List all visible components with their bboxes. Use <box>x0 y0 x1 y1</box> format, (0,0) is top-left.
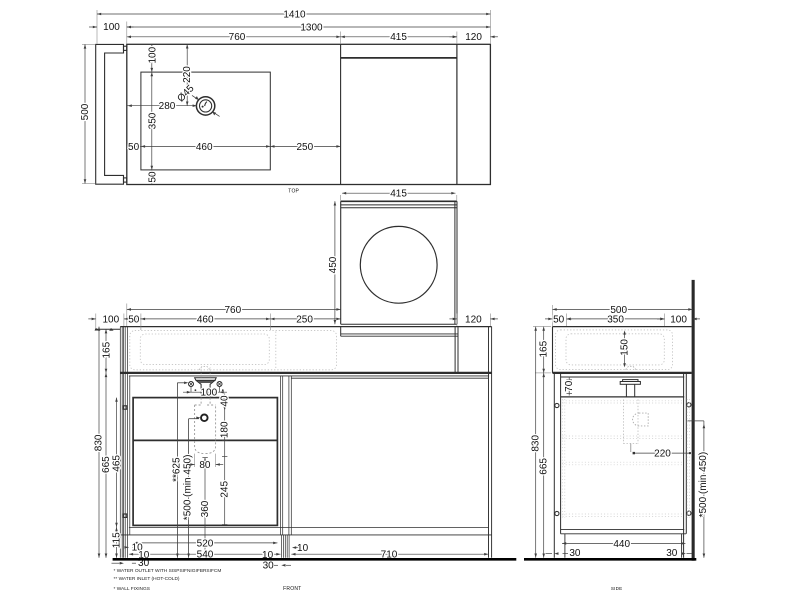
svg-text:50: 50 <box>147 171 158 183</box>
svg-text:460: 460 <box>196 142 213 153</box>
svg-text:1300: 1300 <box>300 22 323 33</box>
svg-text:** WATER INLET (HOT-COLD): ** WATER INLET (HOT-COLD) <box>114 576 180 582</box>
svg-text:120: 120 <box>465 314 482 325</box>
svg-text:450: 450 <box>328 256 339 273</box>
svg-text:415: 415 <box>390 32 407 43</box>
svg-text:760: 760 <box>224 305 241 316</box>
svg-text:50: 50 <box>553 314 565 325</box>
svg-text:830: 830 <box>531 435 542 452</box>
svg-text:100: 100 <box>200 388 217 399</box>
svg-text:100: 100 <box>670 314 687 325</box>
svg-text:100: 100 <box>102 314 119 325</box>
svg-text:360: 360 <box>200 500 211 517</box>
svg-text:250: 250 <box>296 142 313 153</box>
svg-text:150: 150 <box>619 339 630 356</box>
svg-text:FRONT: FRONT <box>283 586 301 592</box>
svg-text:465: 465 <box>111 455 122 472</box>
svg-text:40: 40 <box>219 395 230 407</box>
svg-text:100: 100 <box>147 46 158 63</box>
svg-text:30: 30 <box>569 548 581 559</box>
svg-text:220: 220 <box>654 448 671 459</box>
svg-text:440: 440 <box>613 539 630 550</box>
svg-text:165: 165 <box>539 340 550 357</box>
svg-text:10: 10 <box>297 543 309 554</box>
svg-text:*500 (min 450): *500 (min 450) <box>698 452 709 518</box>
svg-text:415: 415 <box>390 189 407 200</box>
svg-text:180: 180 <box>220 421 231 438</box>
svg-text:70: 70 <box>564 380 575 392</box>
svg-text:220: 220 <box>182 66 193 83</box>
svg-text:165: 165 <box>101 341 112 358</box>
svg-text:250: 250 <box>296 314 313 325</box>
svg-text:**625: **625 <box>172 457 183 482</box>
svg-text:280: 280 <box>159 101 176 112</box>
svg-text:760: 760 <box>229 32 246 43</box>
svg-text:80: 80 <box>199 460 211 471</box>
svg-text:* WATER OUTLET WITH SISPSIFNIG: * WATER OUTLET WITH SISPSIFNIGIFBRSIFCM <box>114 568 222 574</box>
svg-text:100: 100 <box>103 22 120 33</box>
svg-text:350: 350 <box>607 314 624 325</box>
svg-text:TOP: TOP <box>288 189 299 195</box>
svg-text:SIDE: SIDE <box>611 586 623 591</box>
svg-text:* WALL FIXINGS: * WALL FIXINGS <box>114 586 150 592</box>
svg-text:500: 500 <box>80 103 91 120</box>
svg-text:30: 30 <box>263 561 275 572</box>
svg-text:120: 120 <box>465 32 482 43</box>
svg-text:30: 30 <box>666 548 678 559</box>
svg-text:50: 50 <box>128 142 140 153</box>
svg-text:520: 520 <box>197 538 214 549</box>
svg-text:50: 50 <box>128 314 140 325</box>
svg-text:830: 830 <box>93 434 104 451</box>
svg-text:1410: 1410 <box>283 9 306 20</box>
svg-text:115: 115 <box>111 532 122 548</box>
svg-text:460: 460 <box>197 314 214 325</box>
svg-text:245: 245 <box>220 481 231 498</box>
svg-text:350: 350 <box>147 112 158 129</box>
svg-text:665: 665 <box>539 458 550 475</box>
